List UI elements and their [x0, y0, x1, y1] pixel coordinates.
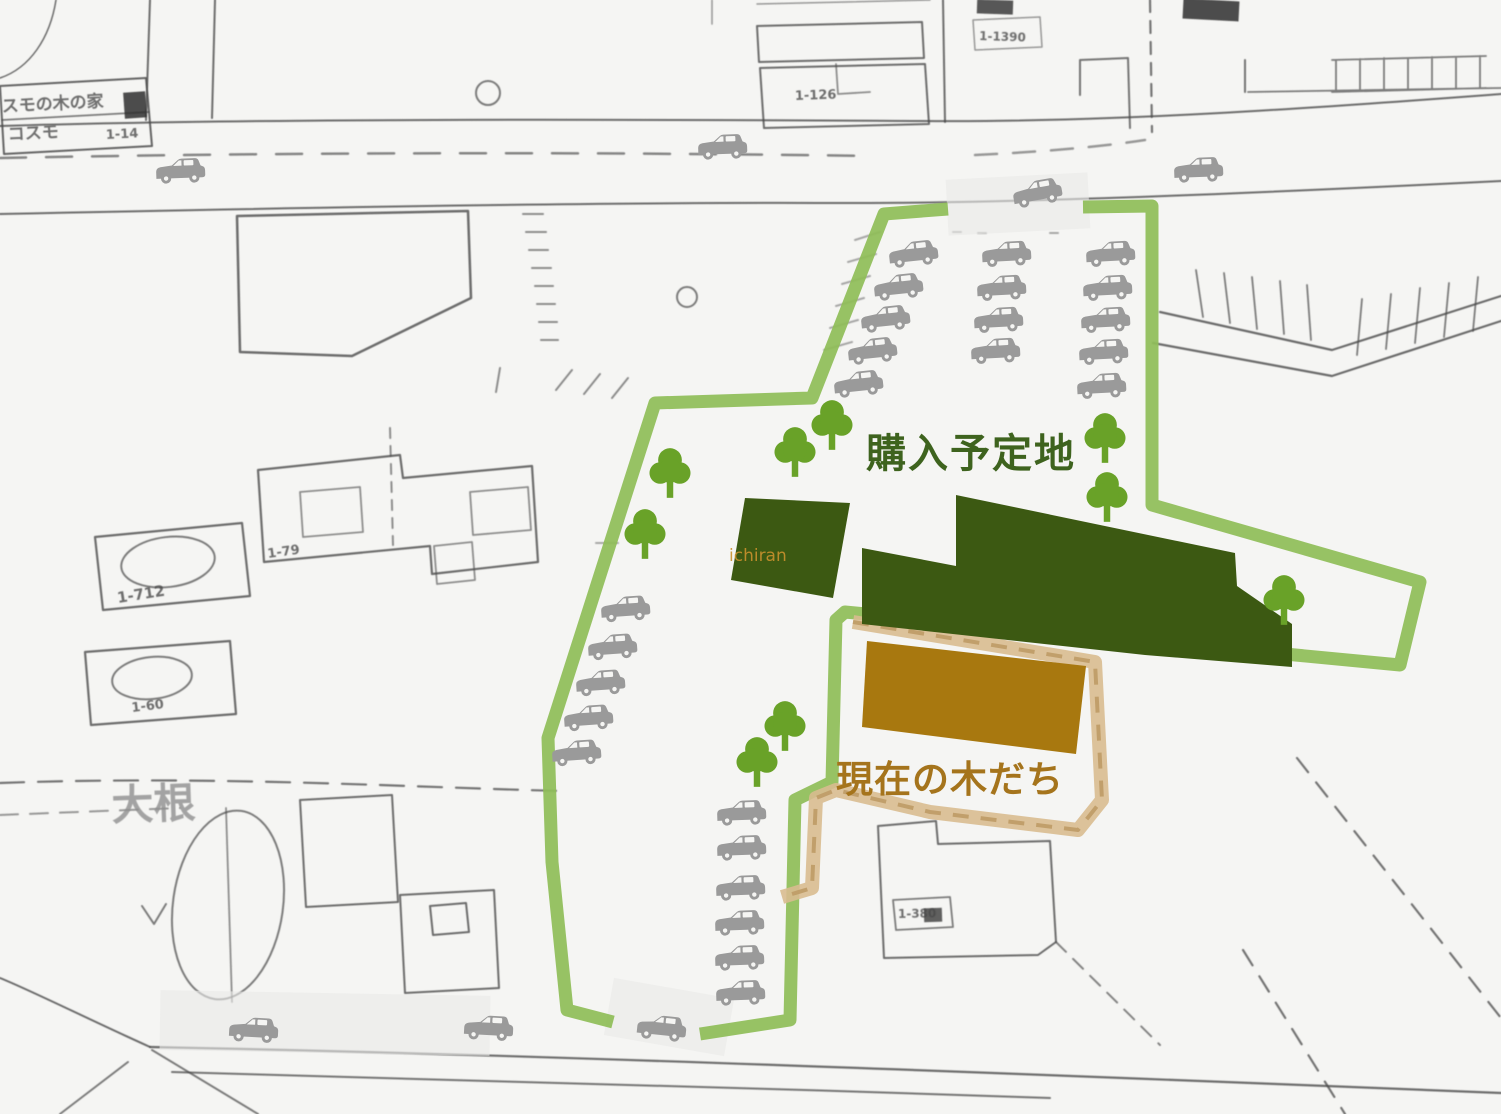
car-icon [977, 274, 1027, 301]
car-icon [888, 239, 939, 269]
car-icon [716, 980, 766, 1006]
map-ellipse [110, 653, 194, 703]
parcel-label: 1-14 [105, 126, 138, 143]
map-line [150, 1047, 1501, 1093]
car-icon [600, 595, 651, 623]
car-icon [847, 336, 898, 366]
map-line [1243, 950, 1345, 1114]
tree-icon [736, 737, 777, 787]
map-line [0, 181, 1501, 214]
map-line [172, 1072, 1050, 1098]
tree-icon [649, 448, 690, 498]
map-ink-blob [977, 0, 1013, 15]
car-icon [717, 835, 767, 861]
purchase-area-label: 購入予定地 [866, 431, 1076, 477]
parcel-label: 1-126 [795, 88, 837, 104]
map-line [1056, 942, 1160, 1045]
map-line [60, 1050, 258, 1114]
map-line [496, 368, 628, 398]
car-icon [833, 369, 884, 399]
parcel-label: 1-60 [131, 697, 165, 716]
site-map-svg: スモの木の家コスモ1-141-1261-13901-791-7121-60大根1… [0, 0, 1501, 1114]
tree-icon [624, 509, 665, 559]
map-ellipse [118, 531, 217, 592]
survey-mark-circle [476, 81, 500, 105]
current-trees-label: 現在の木だち [836, 758, 1064, 801]
road-band [946, 172, 1091, 235]
map-line [760, 64, 929, 128]
parcel-label: コスモ [7, 122, 59, 145]
map-line [226, 808, 232, 1002]
car-icon [715, 910, 765, 936]
map-line [300, 795, 499, 993]
car-icon [974, 306, 1024, 333]
map-ink-blob [123, 91, 147, 118]
tree-icon [1084, 413, 1125, 463]
car-icon [551, 739, 602, 767]
car-icon [1086, 240, 1136, 267]
tree-icon [811, 400, 852, 450]
car-icon [860, 304, 911, 334]
car-icon [982, 240, 1032, 267]
map-line [212, 0, 215, 118]
map-line [0, 94, 1501, 126]
map-line [712, 0, 930, 24]
car-icon [1083, 274, 1133, 301]
map-line [975, 140, 1145, 155]
car-icon [716, 875, 766, 901]
map-line [0, 978, 150, 1047]
car-icon [698, 134, 748, 160]
tree-icon [774, 427, 815, 477]
map-line [142, 904, 166, 924]
car-icon [971, 337, 1021, 364]
road-band [160, 990, 491, 1056]
map-line [596, 232, 1058, 543]
map-line [300, 487, 531, 584]
map-line [878, 821, 1056, 958]
parcel-label: スモの木の家 [1, 91, 104, 117]
car-icon [563, 704, 614, 732]
parcel-label: 大根 [111, 778, 197, 830]
car-icon [715, 945, 765, 971]
map-line [390, 428, 393, 545]
parcel-label: 1-380 [898, 906, 937, 921]
map-line [0, 0, 56, 78]
car-icon [1081, 306, 1131, 333]
map-ink-blob [1183, 0, 1240, 21]
car-icon [575, 669, 626, 697]
map-line [1248, 56, 1501, 92]
map-line [237, 211, 471, 356]
map-line [943, 0, 945, 122]
car-icon [873, 272, 924, 302]
map-line [757, 22, 924, 62]
car-icon [1079, 338, 1129, 365]
survey-mark-circle [677, 287, 697, 307]
site-map-canvas: スモの木の家コスモ1-141-1261-13901-791-7121-60大根1… [0, 0, 1501, 1114]
map-line [1160, 296, 1501, 350]
car-icon [1077, 372, 1127, 399]
parcel-label: 1-712 [116, 582, 166, 607]
map-line [836, 64, 870, 94]
map-line [1297, 758, 1501, 1018]
tree-icon [764, 701, 805, 751]
car-icon [587, 633, 638, 661]
map-ellipse [160, 803, 295, 1006]
parcel-label: 1-1390 [979, 29, 1026, 45]
map-line [1150, 0, 1152, 132]
map-line [523, 214, 558, 340]
car-icon [717, 800, 767, 826]
tree-icon [1086, 472, 1127, 522]
map-line [0, 780, 565, 791]
car-icon [1174, 157, 1224, 183]
watermark-text: ichiran [729, 546, 787, 566]
car-icon [156, 158, 206, 184]
